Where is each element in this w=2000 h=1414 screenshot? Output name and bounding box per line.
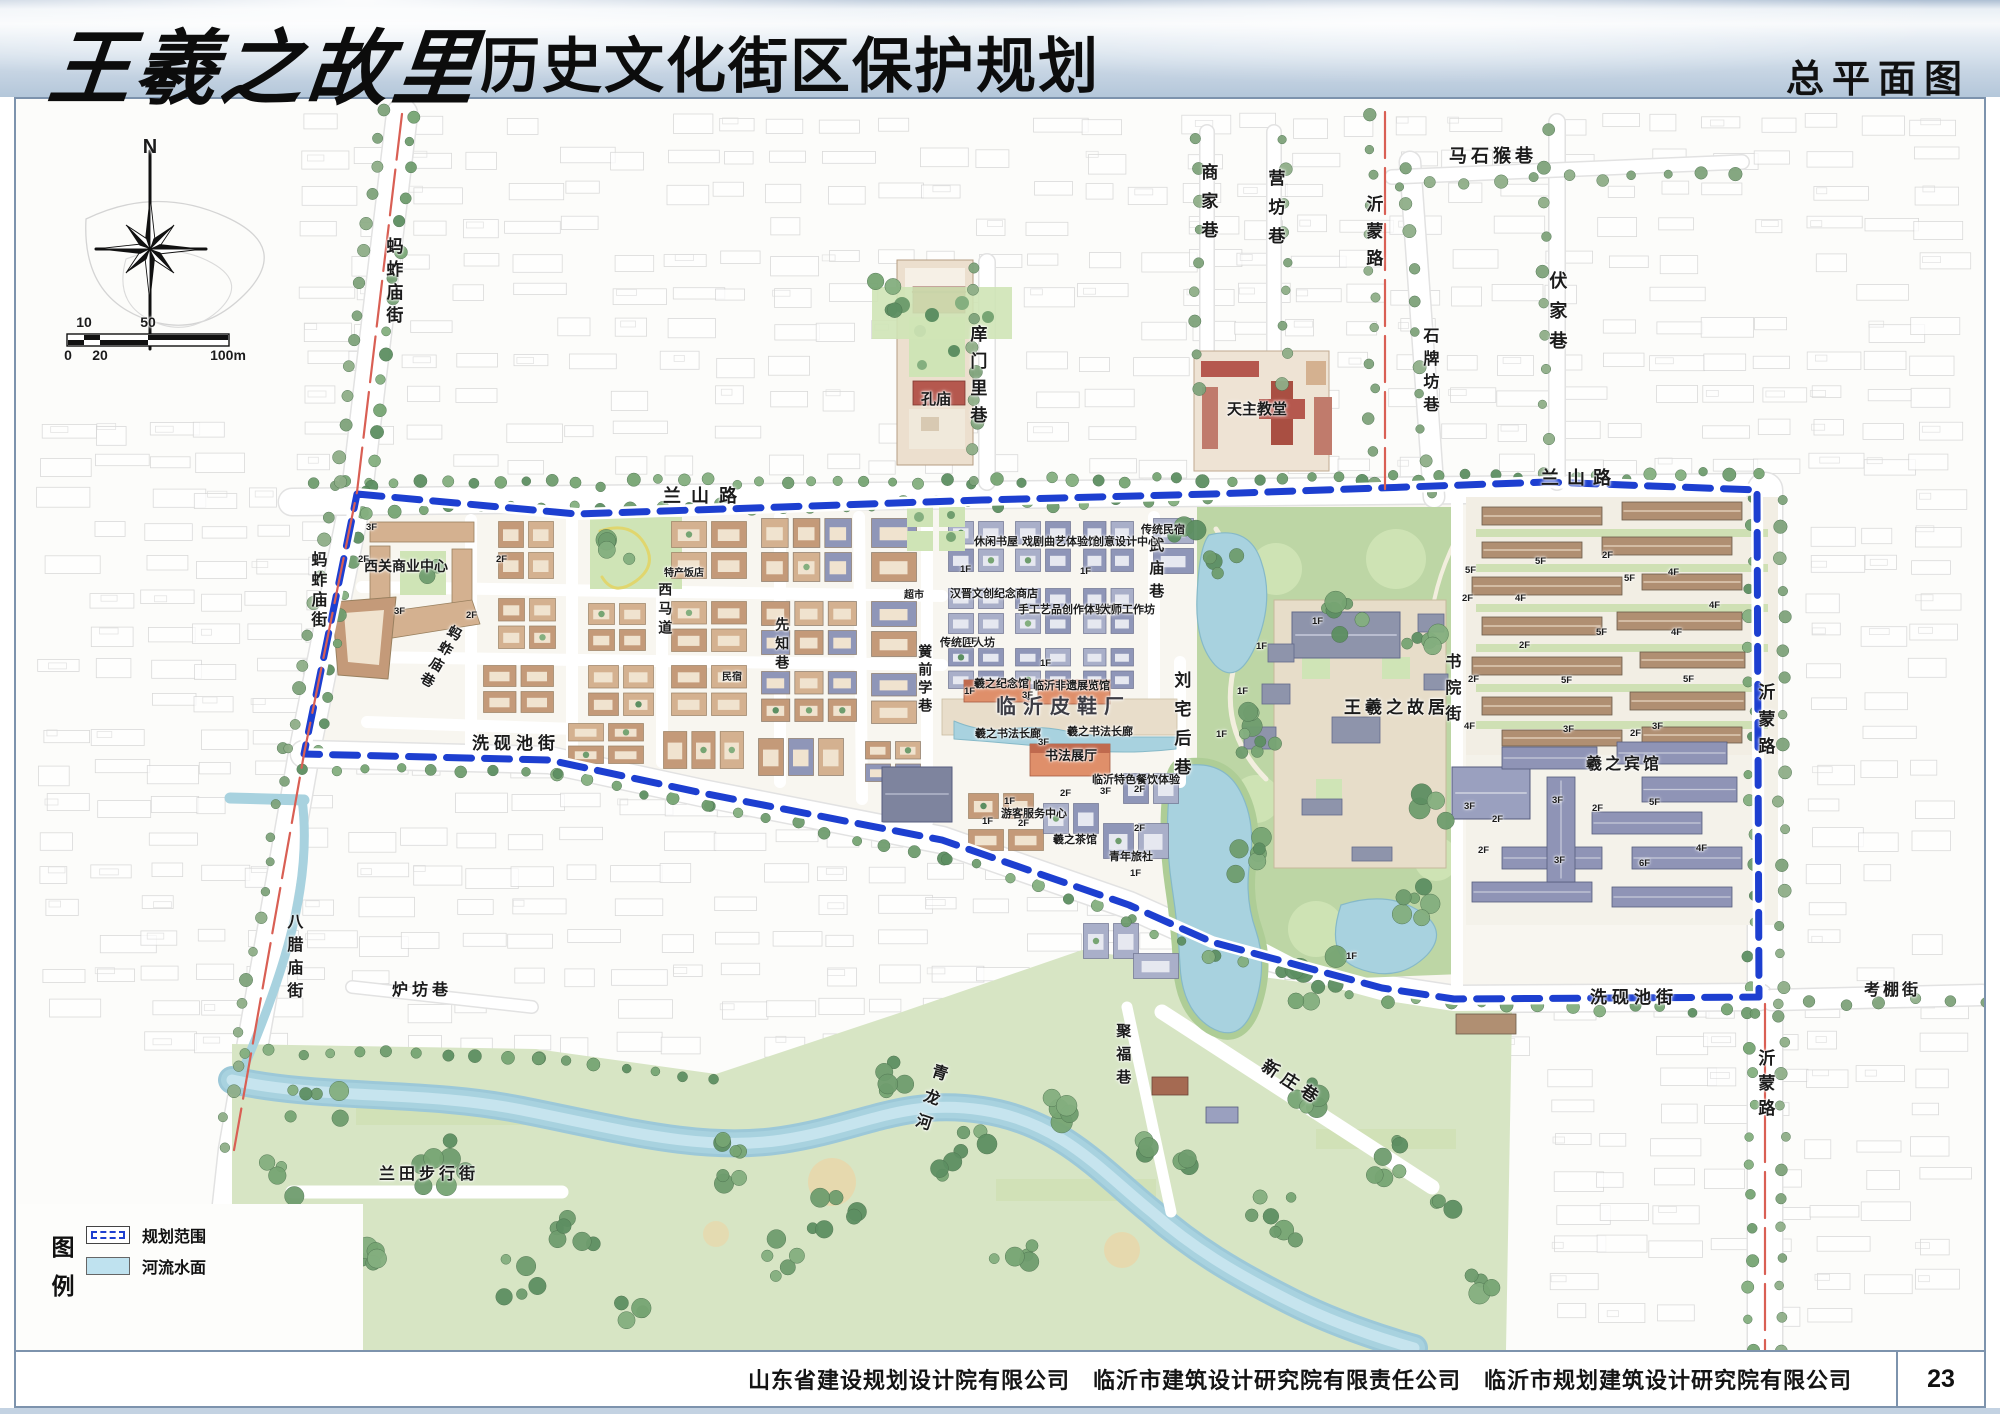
floor-label: 3F [1552,796,1563,806]
scalebar-label: 50 [140,315,156,329]
floor-label: 4F [1696,844,1707,854]
legend: 图例 规划范围 河流水面 [38,1221,338,1341]
poi-label: 西关商业中心 [364,559,448,573]
facility-label: 创意设计中心 [1093,537,1159,548]
map-labels-layer: N蚂蚱庙街马石猴巷商家巷营坊巷沂蒙路伏家巷石牌坊巷庠门里巷孔庙天主教堂兰山路兰山… [16,99,1984,1350]
street-label: 考棚街 [1864,983,1921,999]
poi-label: 孔庙 [921,392,951,407]
floor-label: 2F [1060,789,1071,799]
facility-label: 羲之书法长廊 [1067,727,1133,738]
legend-title: 图例 [44,1235,78,1313]
floor-label: 5F [1561,676,1572,686]
street-label: 庠门里巷 [968,325,985,433]
street-label: 石牌坊巷 [1420,327,1436,419]
street-label: 沂蒙路 [1756,683,1773,764]
facility-label: 传统民宿 [1141,525,1185,536]
water-swatch-icon [86,1257,130,1275]
boundary-swatch-icon [86,1226,130,1244]
legend-item-label: 规划范围 [142,1223,206,1247]
floor-label: 2F [466,611,477,621]
floor-label: 1F [1346,952,1357,962]
scalebar-label: 20 [92,348,108,362]
facility-label: 游客服务中心 [1001,809,1067,820]
floor-label: 3F [1038,738,1049,748]
floor-label: 3F [1100,787,1111,797]
plan-sheet: { "header": { "title_calligraphy": "王羲之故… [0,0,2000,1414]
street-label: 兰山路 [1541,469,1619,487]
facility-label: 超市 [904,591,924,601]
street-label: 商家巷 [1199,163,1216,250]
floor-label: 3F [1563,725,1574,735]
facility-label: 羲之茶馆 [1053,835,1097,846]
facility-label: 青年旅社 [1109,852,1153,863]
floor-label: 4F [1515,594,1526,604]
floor-label: 4F [1671,628,1682,638]
poi-label: 王羲之故居 [1344,699,1449,716]
street-label: 伏家巷 [1548,271,1566,361]
floor-label: 4F [1668,568,1679,578]
street-label: 沂蒙路 [1756,1049,1773,1124]
floor-label: 3F [366,523,377,533]
street-label: 黉前学巷 [918,644,932,716]
floor-label: 2F [1134,824,1145,834]
street-label: 蚂蚱庙街 [384,237,401,329]
street-label: 青龙河 [908,1061,948,1140]
poi-label: 天主教堂 [1227,402,1287,417]
floor-label: 1F [1040,659,1051,669]
floor-label: 1F [966,637,977,647]
floor-label: 1F [1080,567,1091,577]
street-label: 刘宅后巷 [1172,671,1189,787]
floor-label: 2F [1492,815,1503,825]
floor-label: 2F [1478,846,1489,856]
plan-frame: N蚂蚱庙街马石猴巷商家巷营坊巷沂蒙路伏家巷石牌坊巷庠门里巷孔庙天主教堂兰山路兰山… [14,97,1986,1408]
floor-label: 3F [1652,722,1663,732]
floor-label: 1F [1237,687,1248,697]
street-label: 兰田步行街 [379,1167,479,1183]
facility-label: 戏剧曲艺体验馆 [1022,537,1099,548]
floor-label: 2F [1134,785,1145,795]
street-label: 书院街 [1442,653,1458,731]
floor-label: 2F [1592,804,1603,814]
facility-label: 羲之书法长廊 [975,729,1041,740]
floor-label: 3F [1022,691,1033,701]
scalebar-label: 100m [210,348,246,362]
street-label: 马石猴巷 [1449,147,1537,165]
floor-label: 5F [1465,566,1476,576]
street-label: 聚福巷 [1115,1023,1130,1092]
poi-label: 临沂皮鞋厂 [996,697,1131,717]
facility-label: 书法展厅 [1045,749,1097,762]
floor-label: 3F [1464,802,1475,812]
north-label: N [143,137,157,157]
floor-label: 2F [1630,729,1641,739]
floor-label: 1F [1216,730,1227,740]
legend-item-water: 河流水面 [86,1254,206,1278]
title-block: 山东省建设规划设计院有限公司 临沂市建筑设计研究院有限责任公司 临沂市规划建筑设… [16,1352,1984,1406]
floor-label: 5F [1535,557,1546,567]
street-label: 炉坊巷 [392,983,452,999]
facility-label: 大师工作坊 [1100,605,1155,616]
floor-label: 4F [1464,722,1475,732]
floor-label: 1F [982,817,993,827]
street-label: 蚂蚱庙巷 [416,623,464,692]
facility-label: 临沂非遗展览馆 [1033,681,1110,692]
floor-label: 2F [1519,641,1530,651]
street-label: 洗砚池街 [472,735,560,752]
page-number: 23 [1896,1352,1984,1406]
design-companies: 山东省建设规划设计院有限公司 临沂市建筑设计研究院有限责任公司 临沂市规划建筑设… [748,1363,1852,1395]
floor-label: 5F [1649,798,1660,808]
street-label: 沂蒙路 [1364,195,1381,276]
floor-label: 1F [1004,797,1015,807]
facility-label: 民宿 [722,673,742,683]
floor-label: 1F [964,687,975,697]
floor-label: 2F [496,555,507,565]
floor-label: 1F [1312,617,1323,627]
street-label: 营坊巷 [1266,169,1283,256]
street-label: 西马道 [658,582,672,639]
street-label: 新庄巷 [1259,1057,1326,1109]
street-label: 兰山路 [663,487,747,505]
floor-label: 2F [1462,594,1473,604]
street-label: 洗砚池街 [1590,989,1678,1006]
floor-label: 5F [1624,574,1635,584]
street-label: 蚂蚱庙街 [308,551,324,631]
floor-label: 1F [1256,642,1267,652]
scalebar-label: 0 [64,348,72,362]
floor-label: 5F [1596,628,1607,638]
facility-label: 特产饭店 [664,569,704,579]
floor-label: 3F [394,607,405,617]
poi-label: 羲之宾馆 [1586,757,1662,773]
floor-label: 4F [1709,601,1720,611]
title-rest: 历史文化街区保护规划 [480,33,1100,100]
facility-label: 羲之纪念馆 [974,679,1029,690]
scalebar-label: 10 [76,315,92,329]
facility-label: 汉晋文创纪念商店 [950,589,1038,600]
floor-label: 2F [1602,551,1613,561]
floor-label: 2F [1468,675,1479,685]
street-label: 先知巷 [775,617,789,674]
floor-label: 1F [960,565,971,575]
floor-label: 1F [1130,869,1141,879]
floor-label: 2F [1018,819,1029,829]
title-calligraphy: 王羲之故里 [44,2,487,121]
floor-label: 2F [358,555,369,565]
floor-label: 3F [1554,856,1565,866]
drawing-type-title: 总平面图 [1786,48,1970,103]
legend-item-boundary: 规划范围 [86,1223,206,1247]
floor-label: 6F [1639,859,1650,869]
map-canvas: N蚂蚱庙街马石猴巷商家巷营坊巷沂蒙路伏家巷石牌坊巷庠门里巷孔庙天主教堂兰山路兰山… [16,99,1984,1352]
legend-item-label: 河流水面 [142,1254,206,1278]
facility-label: 休闲书屋 [974,537,1018,548]
bottom-strip [0,1408,2000,1414]
floor-label: 5F [1683,675,1694,685]
page-title: 王羲之故里历史文化街区保护规划 [50,2,1100,121]
street-label: 八腊庙街 [284,913,300,1005]
